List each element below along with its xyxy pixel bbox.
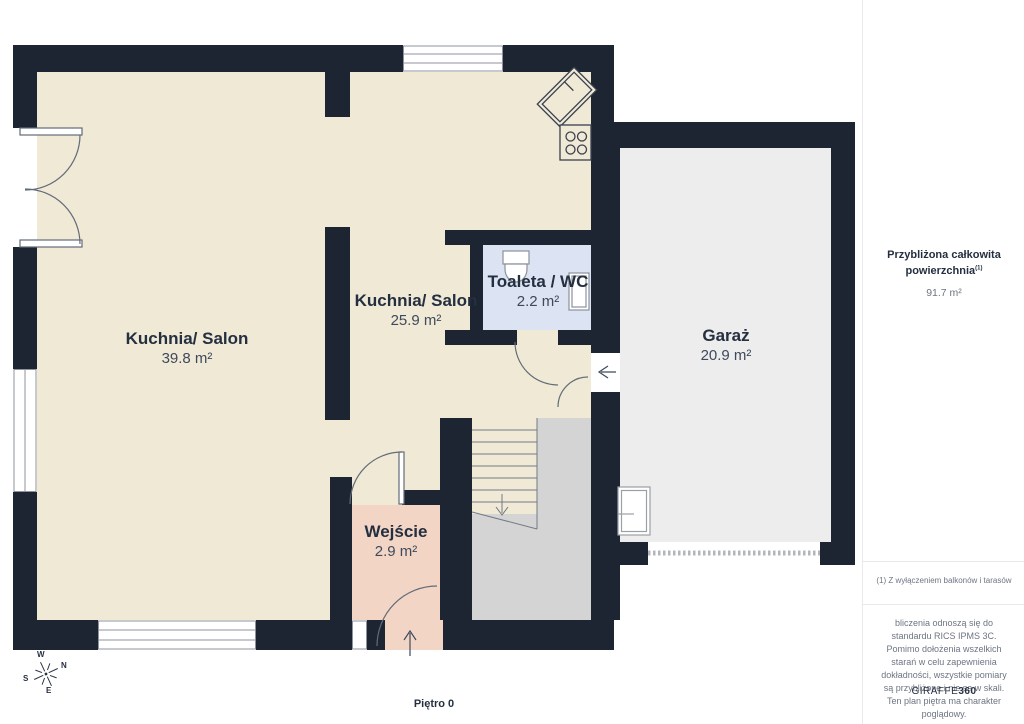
- compass-label-s: S: [23, 674, 28, 683]
- left-window-opening: [13, 369, 37, 492]
- total-area-block: Przybliżona całkowita powierzchnia(1) 91…: [863, 248, 1024, 299]
- top-window-opening: [403, 45, 503, 72]
- wall-bottom-d: [443, 620, 614, 650]
- wall-garage-top: [614, 122, 855, 148]
- wall-garage-right: [831, 122, 855, 565]
- sidebar-divider: [863, 561, 1024, 562]
- wall-garage-stub-br: [820, 542, 855, 565]
- room-name: Garaż: [626, 325, 826, 346]
- total-area-label-line1: Przybliżona całkowita: [887, 249, 1001, 261]
- wall-bottom-c: [367, 620, 385, 650]
- room-name: Wejście: [316, 521, 476, 542]
- area-footnote: (1) Z wyłączeniem balkonów i tarasów: [871, 576, 1017, 585]
- sidebar-divider: [863, 604, 1024, 605]
- disclaimer-text: bliczenia odnoszą się do standardu RICS …: [876, 617, 1012, 721]
- wall-toilet-bottom-left: [445, 330, 517, 345]
- bottom-window-opening: [98, 620, 256, 650]
- label-toaleta: Toaleta / WC 2.2 m²: [438, 271, 638, 312]
- wall-toilet-bottom-right: [558, 330, 591, 345]
- floor-label: Piętro 0: [374, 698, 494, 710]
- room-area: 20.9 m²: [626, 347, 826, 366]
- wall-garage-stub-bl: [614, 542, 648, 565]
- stairs-treads: [472, 418, 537, 514]
- wall-right-lower: [591, 392, 620, 620]
- wall-top: [30, 45, 614, 72]
- total-area-value: 91.7 m²: [863, 287, 1024, 299]
- wall-right-upper: [591, 45, 614, 122]
- compass-label-n: N: [61, 661, 67, 670]
- room-area: 2.2 m²: [438, 293, 638, 312]
- label-wejscie: Wejście 2.9 m²: [316, 521, 476, 562]
- brand-name: GIRAFFE: [911, 686, 958, 697]
- french-door-opening: [13, 128, 37, 247]
- sidelight-opening: [352, 620, 367, 650]
- compass-label-e: E: [46, 686, 51, 695]
- room-area: 2.9 m²: [316, 543, 476, 562]
- room-area: 25.9 m²: [316, 312, 516, 331]
- brand-suffix: 360: [958, 686, 976, 697]
- floorplan-page: Kuchnia/ Salon 39.8 m² Kuchnia/ Salon 25…: [0, 0, 1024, 724]
- wall-stub-top: [325, 72, 350, 117]
- wall-wejscie-top: [402, 490, 440, 505]
- brand-logo: GIRAFFE360: [863, 686, 1024, 697]
- wall-bottom-a: [30, 620, 98, 650]
- room-wejscie-door-gap: [385, 620, 443, 650]
- label-garaz: Garaż 20.9 m²: [626, 325, 826, 366]
- room-name: Toaleta / WC: [438, 271, 638, 292]
- total-area-label-line2: powierzchnia: [905, 265, 975, 277]
- room-name: Kuchnia/ Salon: [87, 328, 287, 349]
- wall-stairs-left: [440, 418, 472, 620]
- compass-label-w: W: [37, 650, 45, 659]
- footnote-marker: (1): [975, 265, 982, 271]
- label-kuchnia-salon-39: Kuchnia/ Salon 39.8 m²: [87, 328, 287, 369]
- sidebar: Przybliżona całkowita powierzchnia(1) 91…: [862, 0, 1024, 724]
- wall-bottom-b: [256, 620, 352, 650]
- entrance-door-opening: [591, 353, 620, 392]
- wall-toilet-top: [445, 230, 614, 245]
- room-area: 39.8 m²: [87, 350, 287, 369]
